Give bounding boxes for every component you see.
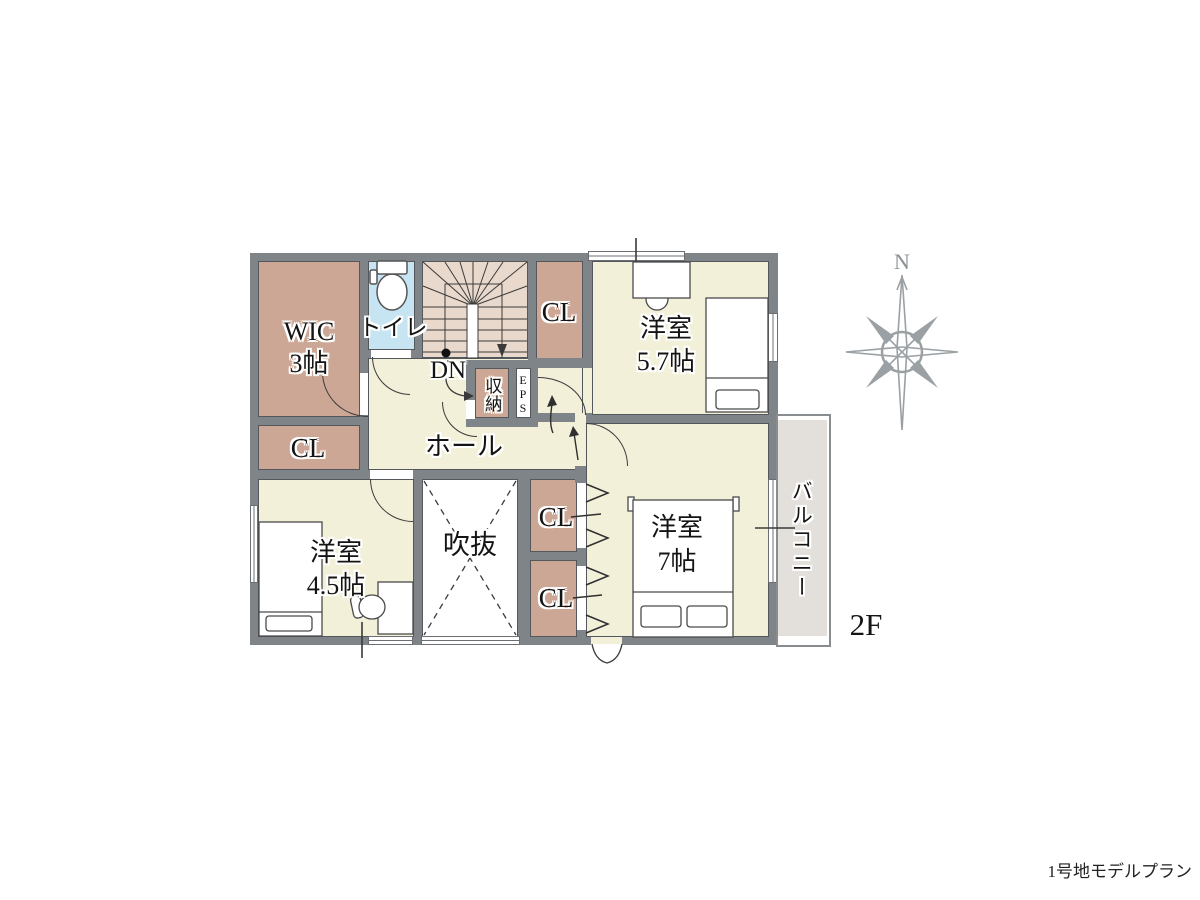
room-label-bedroom-45: 洋室 4.5帖: [261, 536, 411, 602]
storage-name: 収納: [482, 377, 501, 413]
stairs-dn-label: DN: [418, 355, 478, 386]
balcony-name: バルコニー: [789, 480, 813, 600]
bedroom-45-size: 4.5帖: [307, 571, 366, 600]
bedroom-57-size: 5.7帖: [637, 347, 696, 376]
room-label-hall: ホール: [389, 431, 539, 464]
hall-name: ホール: [425, 432, 503, 461]
dn-leader-arrow: [464, 391, 474, 401]
swing-arrow-hall: [547, 395, 557, 433]
room-label-closet-left: CL: [258, 432, 358, 466]
bedroom-7-size: 7帖: [657, 547, 696, 576]
room-label-balcony: バルコニー: [788, 450, 814, 630]
room-label-closet-a: CL: [506, 501, 606, 535]
room-label-bedroom-7: 洋室 7帖: [602, 511, 752, 579]
bottom-door-arch: [592, 644, 622, 663]
floor-label-text: 2F: [850, 607, 883, 642]
bedroom-7-name: 洋室: [651, 513, 703, 542]
room-label-bedroom-57: 洋室 5.7帖: [591, 312, 741, 378]
room-label-toilet: トイレ: [318, 314, 468, 343]
north-text: N: [894, 249, 910, 274]
caption-text: 1号地モデルプラン: [1048, 862, 1193, 881]
floor-plan-page: WIC 3帖 トイレ DN CL 洋室 5.7帖 ホール 収納 EPS CL 洋…: [0, 0, 1200, 900]
bedroom-57-name: 洋室: [640, 314, 692, 343]
room-label-closet-b: CL: [506, 582, 606, 616]
stairs-down-arrow: [497, 344, 507, 357]
toilet-name: トイレ: [359, 315, 428, 340]
compass-north-label: N: [880, 248, 924, 276]
room-label-storage: 収納: [481, 369, 502, 421]
eps-name: EPS: [516, 373, 530, 415]
swing-arrow-bedroom-7: [569, 426, 579, 460]
void-name: 吹抜: [443, 530, 497, 560]
toilet-icon: [370, 261, 407, 310]
floor-label: 2F: [836, 606, 896, 645]
dn-text: DN: [430, 357, 466, 384]
closet-a-name: CL: [539, 502, 574, 532]
bedroom-45-name: 洋室: [310, 538, 362, 567]
closet-top-name: CL: [542, 297, 577, 327]
compass-icon: [846, 275, 958, 430]
plan-lineart: [0, 0, 1200, 900]
room-label-eps: EPS: [515, 369, 530, 419]
closet-left-name: CL: [291, 433, 326, 463]
wic-size: 3帖: [289, 349, 328, 378]
plan-caption: 1号地モデルプラン: [900, 861, 1192, 882]
desk-icon-bedroom-57: [633, 262, 690, 298]
closet-b-name: CL: [539, 583, 574, 613]
